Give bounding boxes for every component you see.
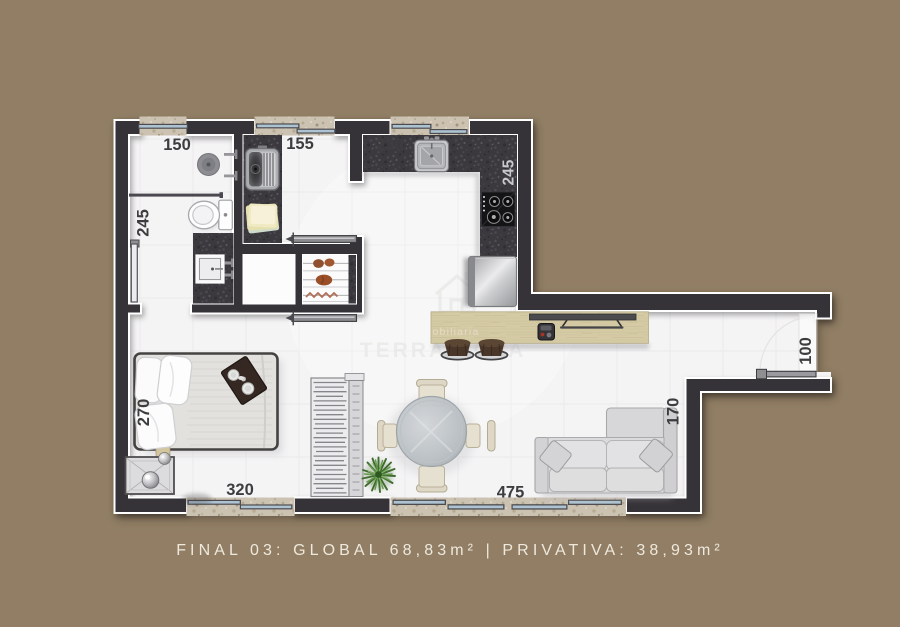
svg-text:150: 150 (163, 136, 191, 154)
svg-text:obiliaria: obiliaria (433, 326, 480, 338)
svg-text:230: 230 (376, 136, 404, 154)
svg-text:270: 270 (135, 399, 153, 427)
svg-text:FINAL 03: GLOBAL 68,83m² | PRI: FINAL 03: GLOBAL 68,83m² | PRIVATIVA: 38… (176, 542, 724, 559)
svg-text:155: 155 (286, 135, 314, 153)
svg-text:475: 475 (497, 484, 525, 502)
svg-text:320: 320 (226, 481, 254, 499)
svg-text:245: 245 (501, 159, 518, 185)
svg-text:100: 100 (797, 337, 815, 365)
svg-text:245: 245 (135, 209, 153, 237)
svg-text:170: 170 (665, 398, 683, 426)
